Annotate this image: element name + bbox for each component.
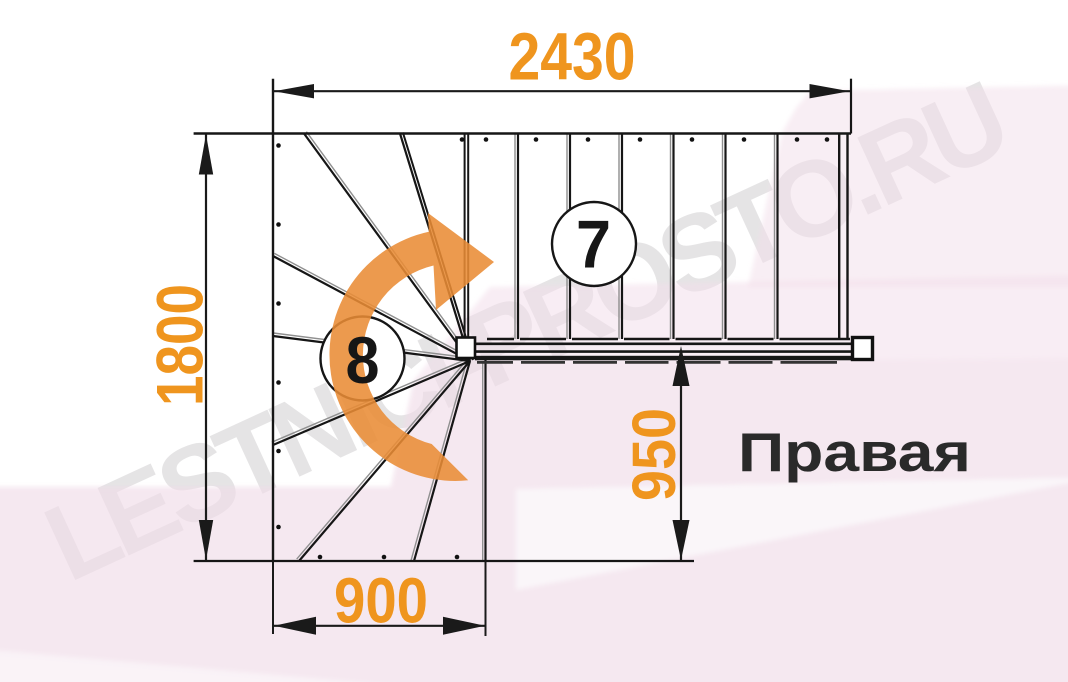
svg-text:950: 950 bbox=[620, 408, 688, 501]
svg-text:1800: 1800 bbox=[143, 284, 217, 406]
svg-text:7: 7 bbox=[576, 207, 611, 283]
svg-text:900: 900 bbox=[334, 565, 428, 637]
svg-text:8: 8 bbox=[346, 323, 380, 397]
svg-text:2430: 2430 bbox=[509, 20, 636, 95]
svg-text:Правая: Правая bbox=[738, 421, 971, 483]
